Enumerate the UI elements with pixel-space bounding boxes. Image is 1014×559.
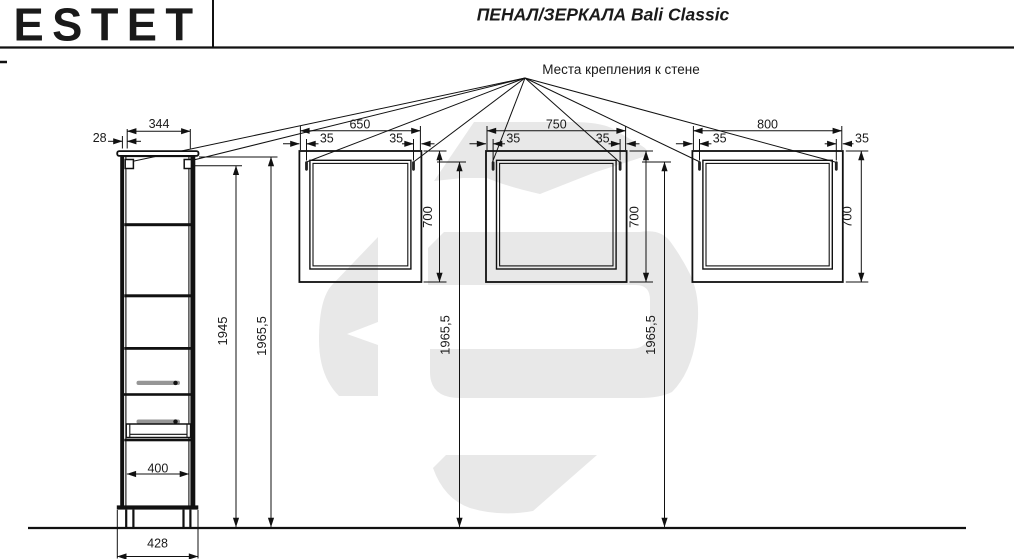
svg-text:35: 35 xyxy=(320,132,334,146)
svg-text:35: 35 xyxy=(506,132,520,146)
svg-text:35: 35 xyxy=(596,132,610,146)
svg-text:1945: 1945 xyxy=(215,317,230,346)
svg-text:428: 428 xyxy=(147,537,168,551)
svg-text:ПЕНАЛ/ЗЕРКАЛА Bali Classic: ПЕНАЛ/ЗЕРКАЛА Bali Classic xyxy=(477,5,730,25)
svg-text:28: 28 xyxy=(93,131,107,145)
svg-text:ESTET: ESTET xyxy=(14,0,202,50)
svg-text:650: 650 xyxy=(349,117,370,131)
svg-text:35: 35 xyxy=(713,132,727,146)
svg-text:1965,5: 1965,5 xyxy=(438,315,453,355)
svg-text:1965,5: 1965,5 xyxy=(643,315,658,355)
svg-text:400: 400 xyxy=(147,462,168,476)
svg-text:800: 800 xyxy=(757,117,778,131)
svg-text:700: 700 xyxy=(627,206,642,228)
svg-text:35: 35 xyxy=(855,132,869,146)
svg-text:700: 700 xyxy=(840,206,855,228)
svg-text:750: 750 xyxy=(546,117,567,131)
svg-text:1965,5: 1965,5 xyxy=(254,316,269,356)
svg-text:35: 35 xyxy=(389,132,403,146)
svg-text:700: 700 xyxy=(420,206,435,228)
svg-text:Места крепления к стене: Места крепления к стене xyxy=(542,62,700,77)
svg-text:344: 344 xyxy=(149,117,170,131)
